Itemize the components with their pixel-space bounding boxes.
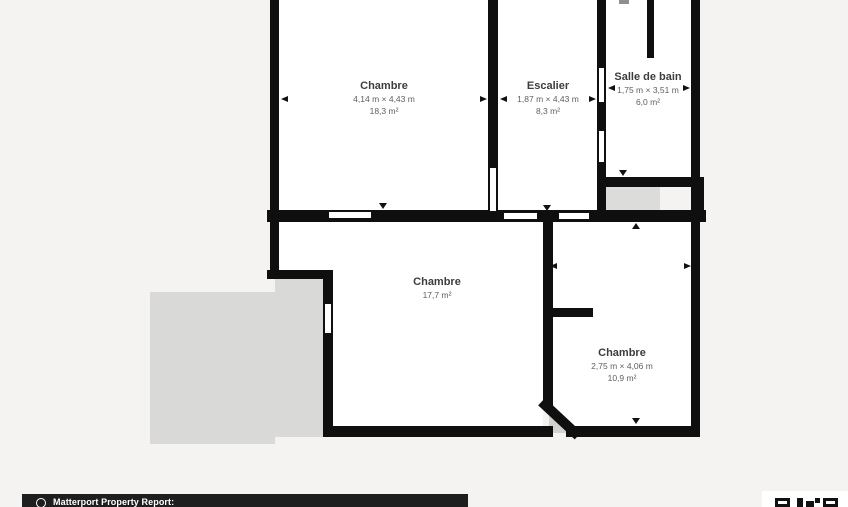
wall-right-outer-bottom [691,210,700,437]
room-dimensions: 1,75 m × 3,51 m [614,84,681,96]
qr-position-square-right [823,498,838,507]
terrace-area [150,292,275,444]
dim-arrow-right-escalier [589,96,596,102]
qr-code [762,491,848,507]
window-chambre-top-left [328,211,372,219]
floor-plan-page: Chambre 4,14 m × 4,43 m 18,3 m² Escalier… [0,0,848,507]
room-chambre-bottom-right [553,222,691,426]
room-label-salle-de-bain: Salle de bain 1,75 m × 3,51 m 6,0 m² [614,71,681,108]
qr-position-square-left [775,498,790,507]
qr-module [797,498,803,507]
wall-bottomright-stub [553,308,593,317]
terrace-area-inner [275,279,323,437]
matterport-logo-icon [36,498,46,507]
room-area: 10,9 m² [591,372,653,384]
door-escalier-bathroom-upper [598,67,605,103]
dim-arrow-bottom-bathroom [619,170,627,176]
room-name: Chambre [591,347,653,360]
recess-below-bathroom [606,187,660,210]
opening-escalier-to-middle [503,212,538,220]
report-title: Matterport Property Report: [53,497,174,507]
dim-arrow-top-chambre-br [632,223,640,229]
room-name: Chambre [353,80,415,93]
window-middle-chambre [324,303,332,334]
wall-middle-left-lower [323,270,333,437]
room-name: Salle de bain [614,71,681,84]
room-name: Chambre [413,276,461,289]
wall-middle-bottomright-divider [543,210,553,406]
wall-bottomright-bottom [566,426,700,437]
dim-arrow-left-chambre-tl [281,96,288,102]
room-dimensions: 4,14 m × 4,43 m [353,93,415,105]
report-footer-bar: Matterport Property Report: [22,494,468,507]
room-label-chambre-middle: Chambre 17,7 m² [413,276,461,301]
room-area: 18,3 m² [353,105,415,117]
dim-arrow-left-escalier [500,96,507,102]
dim-arrow-bottom-chambre-br [632,418,640,424]
wall-middle-bottom [323,426,553,437]
room-label-escalier: Escalier 1,87 m × 4,43 m 8,3 m² [517,80,579,117]
door-escalier-bathroom-lower [598,130,605,163]
qr-module [815,498,820,503]
room-name: Escalier [517,80,579,93]
dim-arrow-right-bathroom [683,85,690,91]
room-area: 8,3 m² [517,105,579,117]
qr-inner-notch [826,501,835,504]
dim-arrow-left-chambre-br [550,263,557,269]
dim-arrow-right-chambre-tl [480,96,487,102]
opening-escalier-to-bottomright [558,212,590,220]
wall-bathroom-partition [647,0,654,58]
qr-module [806,501,814,507]
room-label-chambre-bottom-right: Chambre 2,75 m × 4,06 m 10,9 m² [591,347,653,384]
dim-arrow-bottom-escalier [543,205,551,211]
room-area: 6,0 m² [614,96,681,108]
room-chambre-middle-upper [279,222,543,270]
dim-arrow-bottom-chambre-tl [379,203,387,209]
dim-arrow-right-chambre-br [684,263,691,269]
bathroom-fixture-mark [619,0,629,4]
wall-bathroom-bottom [597,177,704,187]
room-area: 17,7 m² [413,289,461,301]
room-dimensions: 2,75 m × 4,06 m [591,360,653,372]
qr-inner-notch [778,501,787,504]
room-dimensions: 1,87 m × 4,43 m [517,93,579,105]
door-chambre-escalier [489,167,497,212]
wall-left-outer [270,0,279,222]
room-label-chambre-top-left: Chambre 4,14 m × 4,43 m 18,3 m² [353,80,415,117]
